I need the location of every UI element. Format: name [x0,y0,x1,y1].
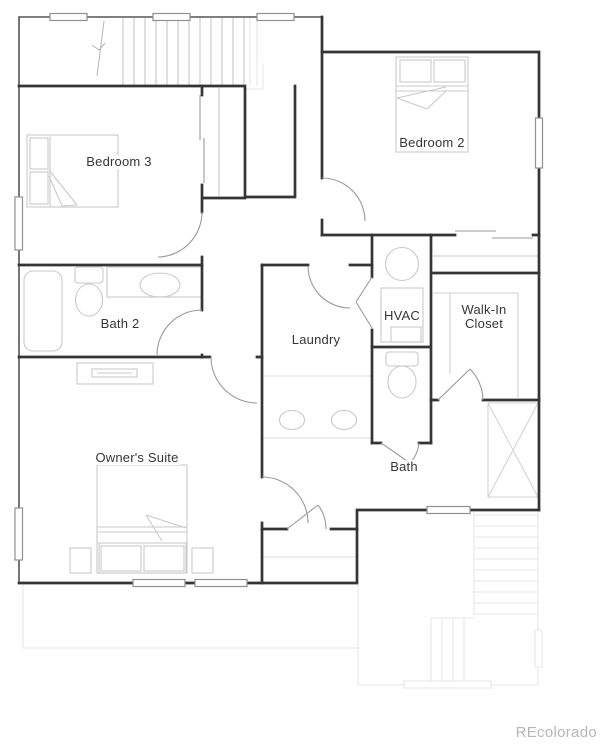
bedroom2-closet-bypass-panels [455,231,533,238]
room-label-owners-suite: Owner's Suite [93,451,180,465]
window [133,580,185,587]
room-label-hvac: HVAC [382,309,422,323]
room-label-walkin-closet: Walk-In Closet [460,303,509,331]
bed-owners-suite [97,465,187,573]
lower-stairs-lower-run [431,618,474,685]
bath2-door-arc [157,310,202,355]
window [15,197,23,250]
bathtub [24,271,62,351]
bed-bedroom3 [27,135,118,207]
walkin-closet-door [438,369,483,400]
window [50,14,87,21]
double-vanity-sinks [280,411,357,430]
bedroom3-door-arc [158,212,202,257]
hvac-bifold-door [356,277,372,328]
sink-bath2 [107,267,202,297]
nightstand [192,548,213,573]
dresser [77,363,153,384]
lower-level-faint-outline [23,18,542,688]
hall-closet-door [287,505,326,529]
stairwell-faint-edge [245,18,263,89]
room-label-bedroom2: Bedroom 2 [397,136,466,150]
toilet-bath [386,352,418,398]
blanket-fold [49,170,77,206]
pillow [101,546,141,571]
window [195,580,247,587]
laundry-door-arc [308,266,350,308]
pillow [434,60,465,82]
room-label-bath2: Bath 2 [99,317,142,331]
pillow [30,138,48,169]
room-label-laundry: Laundry [290,333,342,347]
blanket-fold [397,87,446,109]
lower-stairs-upper-run [474,513,538,614]
faint-window [404,681,491,688]
window [536,118,543,168]
floor-plan-page: Bedroom 3 Bedroom 2 Bath 2 Laundry HVAC … [0,0,602,746]
blanket-fold [146,515,186,541]
room-label-bath: Bath [388,460,420,474]
x-braced-chase [488,403,538,497]
bedroom2-door-arc [322,178,365,221]
staircase-treads [92,18,244,86]
toilet-bath2 [75,267,103,316]
stair-direction-arrow [92,21,105,76]
window [15,508,23,560]
room-label-bedroom3: Bedroom 3 [84,155,153,169]
faint-window [535,630,542,667]
window [153,14,190,21]
exterior-walls [19,17,322,583]
pillow [30,172,48,204]
water-heater [386,248,419,281]
floor-plan-drawing [0,0,602,746]
owners-suite-bath-door-arc [262,477,308,523]
nightstand [70,548,91,573]
window [427,507,470,514]
bedroom3-closet-bifold-panels [200,95,204,183]
window [257,14,294,21]
windows [15,14,543,587]
pillow [400,60,431,82]
owners-suite-entry-arc [211,357,257,403]
pillow [144,546,184,571]
recolorado-watermark: REcolorado [516,724,597,741]
